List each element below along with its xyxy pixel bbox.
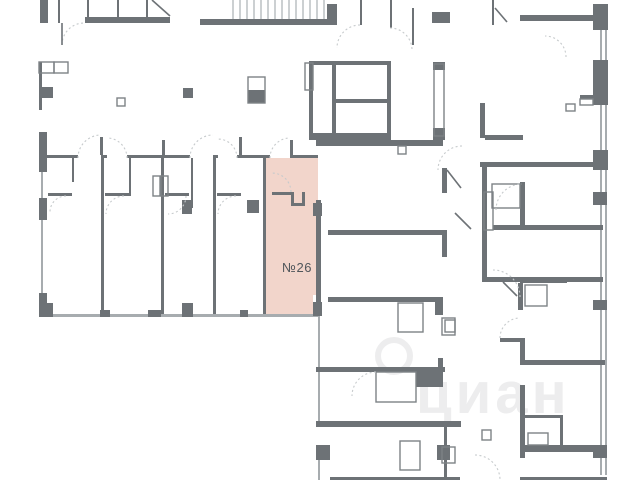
partition-wall (101, 155, 107, 158)
partition-wall (48, 193, 72, 196)
floor-plan: циан№26 (0, 0, 640, 480)
wall (522, 360, 605, 365)
unit-label: №26 (282, 260, 312, 275)
partition-wall (213, 155, 218, 158)
wall (433, 62, 445, 70)
window (41, 220, 43, 293)
wall (182, 200, 192, 214)
wall (593, 60, 608, 105)
partition-wall (100, 137, 103, 155)
wall (593, 300, 607, 310)
partition-wall (127, 155, 190, 158)
wall (442, 230, 447, 257)
wall (182, 303, 193, 317)
wall (240, 310, 248, 317)
wall (85, 17, 170, 23)
partition-wall (272, 192, 293, 195)
partition-wall (412, 8, 414, 45)
wall (432, 12, 450, 23)
partition-wall (390, 0, 392, 28)
wall (327, 4, 337, 25)
partition-wall (105, 193, 129, 196)
wall (433, 128, 445, 140)
wall (336, 99, 387, 103)
partition-wall (72, 158, 74, 182)
wall (485, 135, 523, 140)
wall (438, 358, 443, 387)
wall (309, 133, 391, 140)
unit-26-highlight[interactable] (266, 158, 318, 314)
wall (40, 303, 53, 317)
wall (416, 372, 440, 387)
wall (593, 192, 607, 205)
partition-wall (217, 193, 241, 196)
wall (593, 445, 607, 458)
window (318, 372, 320, 421)
partition-wall (146, 0, 148, 17)
partition-wall (191, 158, 193, 208)
wall (520, 15, 594, 21)
wall (593, 4, 608, 30)
wall (435, 297, 443, 315)
wall (328, 297, 443, 302)
wall (480, 162, 601, 167)
partition-wall (263, 158, 266, 314)
wall (560, 418, 563, 445)
partition-wall (101, 158, 104, 314)
wall (200, 19, 337, 25)
partition-wall (290, 140, 293, 155)
partition-wall (492, 0, 494, 25)
wall (309, 61, 391, 65)
wall (593, 150, 608, 170)
wall (39, 198, 47, 220)
wall (148, 310, 161, 317)
window (41, 172, 43, 198)
wall (40, 0, 48, 23)
wall (525, 415, 563, 418)
partition-wall (58, 0, 60, 23)
partition-wall (302, 192, 305, 206)
window (44, 314, 318, 317)
partition-wall (290, 155, 318, 158)
partition-wall (291, 203, 303, 206)
partition-wall (360, 0, 362, 25)
partition-wall (44, 155, 78, 158)
wall (42, 87, 53, 98)
wall (316, 421, 461, 427)
wall (328, 230, 443, 235)
floor-plan-canvas: циан№26 (0, 0, 640, 480)
partition-wall (117, 0, 119, 17)
wall (313, 302, 322, 316)
wall (316, 200, 321, 303)
wall (500, 338, 522, 342)
partition-wall (237, 155, 270, 158)
wall (480, 103, 485, 138)
wall (493, 225, 603, 230)
partition-wall (129, 158, 131, 196)
partition-wall (239, 137, 242, 155)
wall (520, 280, 567, 283)
partition-wall (213, 158, 216, 314)
wall (247, 200, 259, 213)
partition-wall (87, 0, 89, 17)
wall (316, 445, 330, 460)
partition-wall (444, 427, 447, 480)
wall (39, 132, 47, 172)
wall (332, 63, 336, 133)
partition-wall (162, 140, 165, 155)
wall (482, 230, 487, 282)
wall (442, 168, 447, 193)
wall (520, 182, 525, 227)
window (318, 316, 320, 367)
wall (248, 90, 265, 103)
wall (387, 61, 391, 140)
window (318, 460, 320, 480)
wall (316, 367, 445, 372)
wall (316, 140, 443, 146)
wall (183, 88, 193, 98)
